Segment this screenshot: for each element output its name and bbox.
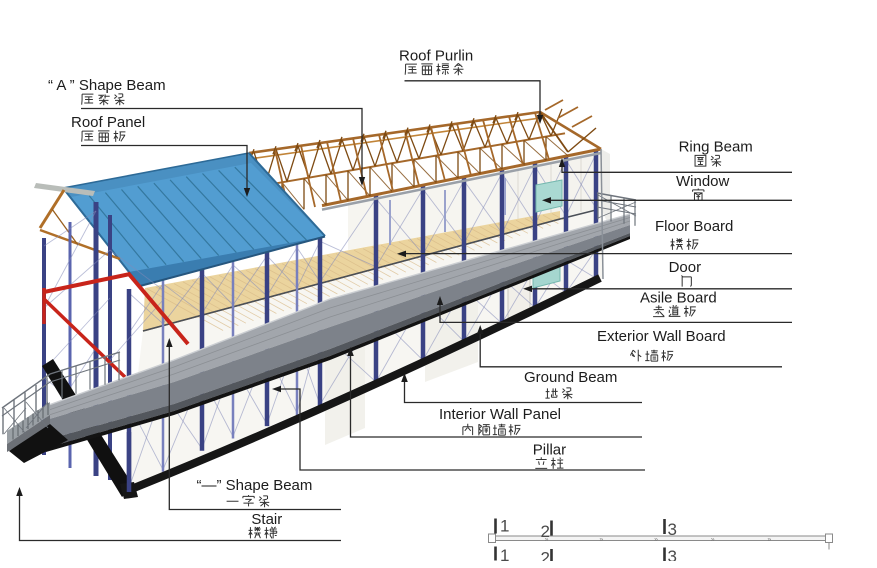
svg-text:Exterior Wall Board: Exterior Wall Board xyxy=(597,328,726,345)
svg-text:3: 3 xyxy=(668,520,677,539)
svg-text:Door: Door xyxy=(669,259,702,276)
svg-text:“—” Shape Beam: “—” Shape Beam xyxy=(197,477,313,494)
svg-text:Window: Window xyxy=(676,173,730,190)
svg-text:2: 2 xyxy=(541,522,550,541)
svg-text:Stair: Stair xyxy=(251,511,282,528)
svg-text:1: 1 xyxy=(500,517,509,536)
svg-text:Interior Wall Panel: Interior Wall Panel xyxy=(439,406,561,423)
svg-text:Floor Board: Floor Board xyxy=(655,218,733,235)
svg-text:Roof Panel: Roof Panel xyxy=(71,114,145,131)
svg-text:“ A ” Shape Beam: “ A ” Shape Beam xyxy=(48,77,166,94)
svg-text:Pillar: Pillar xyxy=(533,442,566,459)
svg-text:»: » xyxy=(599,537,603,544)
svg-text:Asile Board: Asile Board xyxy=(640,289,717,306)
svg-text:Ring Beam: Ring Beam xyxy=(679,139,753,156)
svg-text:»: » xyxy=(711,537,715,544)
svg-text:»: » xyxy=(767,537,771,544)
svg-text:»: » xyxy=(654,537,658,544)
svg-text:Ground Beam: Ground Beam xyxy=(524,369,617,386)
svg-text:Roof Purlin: Roof Purlin xyxy=(399,48,473,65)
